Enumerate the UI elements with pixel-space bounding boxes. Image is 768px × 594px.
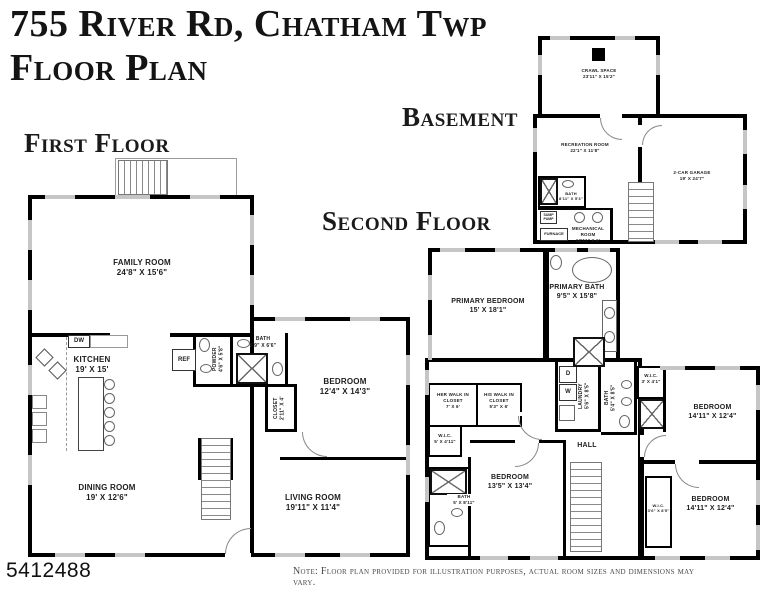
page-title: 755 River Rd, Chatham Twp Floor Plan xyxy=(10,2,487,90)
wall xyxy=(598,362,601,432)
window xyxy=(756,480,760,505)
room-name: PRIMARY BATH xyxy=(549,283,605,292)
window xyxy=(275,553,305,557)
mls-number: 5412488 xyxy=(6,559,91,583)
bedroom-middle-label: BEDROOM 13'5" X 13'4" xyxy=(470,473,550,491)
first-floor-plan: DW REF FAMILY ROOM 24'8" X 15'6" KITCHEN… xyxy=(20,155,420,565)
room-name: BEDROOM xyxy=(668,495,753,504)
dishwasher-box: DW xyxy=(68,335,90,348)
room-dims: 13'5" X 13'4" xyxy=(470,482,550,491)
dining-room-label: DINING ROOM 19' X 12'6" xyxy=(67,483,147,504)
dryer-box: D xyxy=(559,366,577,383)
room-dims: 2'11" X 4' xyxy=(280,389,287,427)
kitchen-label: KITCHEN 19' X 15' xyxy=(57,355,127,376)
stool xyxy=(104,421,115,432)
room-name: MECHANICAL ROOM xyxy=(566,226,610,238)
window xyxy=(660,366,685,370)
sink xyxy=(621,380,632,389)
room-name: FAMILY ROOM xyxy=(102,258,182,268)
water-heater xyxy=(574,212,585,223)
window xyxy=(350,317,380,321)
bath-lower-label: BATH 5' X 8'11" xyxy=(447,494,481,506)
room-dims: 3' X 4'1" xyxy=(638,379,664,385)
window xyxy=(28,365,32,395)
wall xyxy=(601,432,637,435)
room-name: HIS WALK IN CLOSET xyxy=(478,392,520,404)
window xyxy=(495,248,520,252)
room-dims: 12'11" X 6' xyxy=(566,238,610,244)
room-dims: 5'3" X 6' xyxy=(478,404,520,410)
stool xyxy=(104,379,115,390)
room-name: PRIMARY BEDROOM xyxy=(448,297,528,306)
laundry-label: LAUNDRY 5'6" X 8'5" xyxy=(578,365,596,427)
room-dims: 9'5" X 15'8" xyxy=(549,292,605,301)
window xyxy=(538,55,542,75)
window xyxy=(45,195,75,199)
toilet xyxy=(272,362,283,376)
garage-label: 2-CAR GARAGE 19' X 24'7" xyxy=(662,170,722,182)
disclaimer-note: Note: Floor plan provided for illustrati… xyxy=(293,566,713,588)
window xyxy=(655,240,679,244)
shower xyxy=(236,353,268,384)
washer-box: W xyxy=(559,384,577,401)
wall xyxy=(555,362,558,430)
counter xyxy=(90,335,128,348)
room-dims: 5' X 4'11" xyxy=(429,439,461,445)
basement-bath-label: BATH 8'11" X 5'3" xyxy=(558,191,584,201)
room-dims: 4'6" X 5'8" xyxy=(219,335,226,383)
room-dims: 5' X 8'11" xyxy=(447,500,481,506)
stairs-basement xyxy=(628,182,654,242)
window xyxy=(115,195,150,199)
window xyxy=(743,130,747,154)
room-dims: 5'4" X 8'5" xyxy=(611,367,618,429)
room-dims: 23'11" X 15'2" xyxy=(568,74,630,80)
refrigerator-box: REF xyxy=(172,349,196,371)
bath-label: BATH 8'9" X 6'6" xyxy=(241,336,285,349)
mechanical-room-label: MECHANICAL ROOM 12'11" X 6' xyxy=(566,226,610,244)
room-dims: 14'11" X 12'4" xyxy=(668,504,753,513)
window xyxy=(555,248,577,252)
wic-small-label: W.I.C. 3'6" X 8'5" xyxy=(646,503,671,513)
wall xyxy=(285,333,288,387)
chimney xyxy=(592,48,605,61)
sink xyxy=(621,397,632,406)
shower xyxy=(430,469,467,495)
laundry-sink xyxy=(559,405,575,421)
sump-pump-box: SUMP PUMP xyxy=(540,211,557,224)
wall xyxy=(610,208,613,244)
sink xyxy=(200,364,212,373)
hall-label: HALL xyxy=(565,441,609,450)
closet xyxy=(639,399,665,429)
primary-bath-label: PRIMARY BATH 9'5" X 15'8" xyxy=(549,283,605,301)
room-name: KITCHEN xyxy=(57,355,127,365)
furnace-box: FURNACE xyxy=(540,228,568,241)
room-dims: 7' X 6' xyxy=(430,404,476,410)
room-dims: 24'8" X 15'6" xyxy=(102,268,182,278)
bedroom-upper-right-label: BEDROOM 14'11" X 12'4" xyxy=(670,403,755,421)
wic-left-label: W.I.C. 5' X 4'11" xyxy=(429,433,461,445)
room-dims: 14'11" X 12'4" xyxy=(670,412,755,421)
wall xyxy=(193,384,233,387)
floor-plan-page: { "title": {"line1": "755 River Rd, Chat… xyxy=(0,0,768,594)
room-dims: 12'4" X 14'3" xyxy=(305,387,385,397)
stool xyxy=(104,407,115,418)
closet-label: CLOSET 2'11" X 4' xyxy=(273,389,289,427)
powder-label: POWDER 4'6" X 5'8" xyxy=(212,335,228,383)
window xyxy=(425,477,429,502)
window xyxy=(440,248,465,252)
room-dims: 5'6" X 8'5" xyxy=(585,365,592,427)
room-name: HER WALK IN CLOSET xyxy=(430,392,476,404)
window xyxy=(705,556,730,560)
window xyxy=(550,36,570,40)
room-name: LIVING ROOM xyxy=(273,493,353,503)
window xyxy=(698,240,722,244)
stairs-first-floor xyxy=(201,438,231,520)
bedroom-lower-right-label: BEDROOM 14'11" X 12'4" xyxy=(668,495,753,513)
sink xyxy=(562,180,574,188)
window xyxy=(588,248,610,252)
wic-right-label: W.I.C. 3' X 4'1" xyxy=(638,373,664,385)
window xyxy=(250,275,254,305)
room-dims: 22'1" X 11'8" xyxy=(555,148,615,154)
water-heater xyxy=(592,212,603,223)
room-dims: 15' X 18'1" xyxy=(448,306,528,315)
room-name: HALL xyxy=(565,441,609,450)
window xyxy=(275,317,305,321)
living-room-label: LIVING ROOM 19'11" X 11'4" xyxy=(273,493,353,514)
family-room-label: FAMILY ROOM 24'8" X 15'6" xyxy=(102,258,182,279)
wall xyxy=(230,333,233,387)
room-dims: 8'9" X 6'6" xyxy=(241,343,285,350)
window xyxy=(756,525,760,550)
page-title-line2: Floor Plan xyxy=(10,46,487,90)
window xyxy=(656,55,660,75)
second-floor-plan: D W PRIMARY BEDROOM 15' X 18'1" xyxy=(420,245,768,567)
room-dims: 3'6" X 8'5" xyxy=(646,508,671,513)
window xyxy=(55,553,85,557)
her-closet-label: HER WALK IN CLOSET 7' X 6' xyxy=(430,392,476,410)
room-name: BEDROOM xyxy=(470,473,550,482)
window xyxy=(428,275,432,300)
bedroom-label: BEDROOM 12'4" X 14'3" xyxy=(305,377,385,398)
window xyxy=(655,556,680,560)
bath-middle-label: BATH 5'4" X 8'5" xyxy=(604,367,622,429)
window xyxy=(425,370,429,395)
room-name: BEDROOM xyxy=(305,377,385,387)
window xyxy=(615,36,635,40)
wall xyxy=(563,440,566,560)
window xyxy=(756,385,760,410)
wall xyxy=(640,460,760,464)
window xyxy=(28,280,32,310)
window xyxy=(250,215,254,245)
window xyxy=(406,355,410,385)
crawl-space-label: CRAWL SPACE 23'11" X 15'2" xyxy=(568,68,630,80)
toilet xyxy=(550,255,562,270)
window xyxy=(480,556,508,560)
window xyxy=(115,553,145,557)
bedroom-living-area xyxy=(250,317,410,557)
room-dims: 19'11" X 11'4" xyxy=(273,503,353,513)
cabinet xyxy=(32,412,47,426)
window xyxy=(428,335,432,360)
recreation-room-label: RECREATION ROOM 22'1" X 11'8" xyxy=(555,142,615,154)
window xyxy=(715,366,740,370)
shower xyxy=(540,178,558,205)
sink xyxy=(604,307,615,319)
wall xyxy=(555,429,601,432)
window xyxy=(530,556,558,560)
room-name: BEDROOM xyxy=(670,403,755,412)
room-dims: 19' X 12'6" xyxy=(67,493,147,503)
room-name: RECREATION ROOM xyxy=(555,142,615,148)
wall xyxy=(538,208,612,210)
stool xyxy=(104,435,115,446)
page-title-line1: 755 River Rd, Chatham Twp xyxy=(10,2,487,46)
cabinet xyxy=(32,429,47,443)
window xyxy=(28,220,32,250)
kitchen-island xyxy=(78,377,104,451)
sink xyxy=(604,331,615,343)
room-dims: 19' X 24'7" xyxy=(662,176,722,182)
window xyxy=(743,185,747,209)
tub xyxy=(572,257,612,283)
toilet xyxy=(199,338,210,352)
basement-label: Basement xyxy=(402,102,518,133)
window xyxy=(340,553,370,557)
stairs-second-floor xyxy=(570,462,602,552)
window xyxy=(28,455,32,485)
room-name: DINING ROOM xyxy=(67,483,147,493)
sink xyxy=(451,508,463,517)
stool xyxy=(104,393,115,404)
basement-plan: SUMP PUMP FURNACE CRAWL SPACE 23'11" X 1… xyxy=(530,30,768,245)
window xyxy=(406,445,410,475)
window xyxy=(533,128,537,152)
window xyxy=(190,195,220,199)
his-closet-label: HIS WALK IN CLOSET 5'3" X 6' xyxy=(478,392,520,410)
room-dims: 19' X 15' xyxy=(57,365,127,375)
room-dims: 8'11" X 5'3" xyxy=(558,196,584,201)
cabinet xyxy=(32,395,47,409)
primary-bedroom-label: PRIMARY BEDROOM 15' X 18'1" xyxy=(448,297,528,315)
shower xyxy=(573,337,605,367)
deck-stairs xyxy=(118,160,168,195)
toilet xyxy=(434,521,445,535)
wall xyxy=(280,457,410,460)
